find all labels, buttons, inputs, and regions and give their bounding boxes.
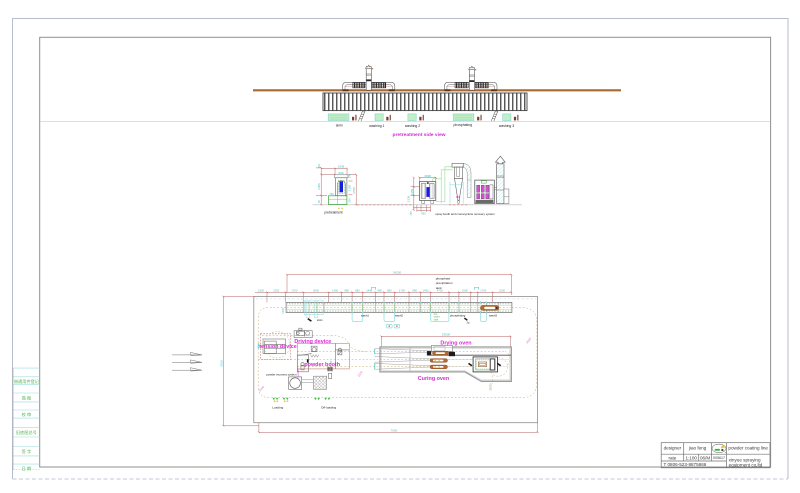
svg-text:850: 850 [421, 212, 426, 216]
svg-text:6150: 6150 [219, 360, 223, 367]
svg-text:Drying oven: Drying oven [440, 341, 471, 347]
svg-text:1700: 1700 [291, 289, 297, 293]
svg-text:1350: 1350 [410, 188, 414, 195]
svg-text:spray booth and monocyclone re: spray booth and monocyclone recovery sys… [435, 212, 495, 216]
svg-text:wash2: wash2 [395, 314, 404, 318]
svg-text:1450: 1450 [423, 289, 429, 293]
svg-text:tension device: tension device [259, 344, 296, 350]
svg-text:washing 2: washing 2 [405, 124, 420, 128]
svg-text:005617: 005617 [713, 456, 725, 460]
svg-text:Off-loading: Off-loading [321, 405, 336, 409]
svg-text:phosphate: phosphate [436, 276, 451, 280]
svg-text:T 0806-523-8875866: T 0806-523-8875866 [664, 462, 707, 467]
svg-text:24250: 24250 [393, 271, 402, 275]
svg-text:tank: tank [434, 318, 439, 321]
svg-text:Driving device: Driving device [294, 339, 331, 345]
svg-text:xinyue spraying: xinyue spraying [729, 457, 761, 462]
svg-text:1:100: 1:100 [685, 455, 697, 460]
svg-text:3750: 3750 [352, 187, 356, 194]
svg-text:rate: rate [668, 455, 676, 460]
svg-text:1500: 1500 [462, 289, 468, 293]
svg-text:phosphating: phosphating [454, 123, 473, 127]
svg-text:1938: 1938 [338, 165, 345, 169]
svg-text:7000: 7000 [391, 428, 398, 432]
svg-text:描 图: 描 图 [22, 395, 32, 402]
svg-text:1500: 1500 [258, 289, 264, 293]
svg-text:600: 600 [456, 195, 461, 199]
svg-text:880: 880 [413, 289, 418, 293]
svg-text:jiao feng: jiao feng [688, 446, 707, 451]
svg-text:校 审: 校 审 [22, 411, 32, 418]
svg-text:Loading: Loading [272, 405, 283, 409]
svg-text:880: 880 [355, 289, 360, 293]
svg-text:880: 880 [387, 289, 392, 293]
svg-text:200: 200 [348, 173, 351, 178]
svg-text:2300: 2300 [317, 183, 321, 190]
svg-text:washing 1: washing 1 [369, 124, 384, 128]
svg-text:tank: tank [436, 286, 442, 290]
svg-text:998: 998 [338, 171, 343, 175]
svg-text:450: 450 [410, 211, 413, 216]
svg-text:wash3: wash3 [489, 313, 498, 317]
svg-text:powder booth: powder booth [304, 362, 340, 368]
svg-text:1700: 1700 [480, 289, 486, 293]
svg-text:35/33: 35/33 [489, 383, 493, 390]
svg-text:washing 3: washing 3 [499, 124, 514, 128]
svg-text:skim: skim [317, 318, 323, 322]
svg-text:1450: 1450 [332, 289, 338, 293]
svg-text:designer: designer [664, 446, 682, 451]
svg-text:3000: 3000 [313, 289, 319, 293]
svg-text:3998: 3998 [424, 174, 431, 178]
svg-text:06/M: 06/M [700, 455, 710, 460]
svg-text:wash1: wash1 [361, 314, 370, 318]
svg-text:23500: 23500 [442, 332, 451, 336]
svg-text:pretreatment: pretreatment [324, 211, 342, 215]
svg-text:precipitation: precipitation [436, 281, 453, 285]
svg-text:powder coating line: powder coating line [728, 445, 768, 450]
svg-text:1350: 1350 [347, 184, 351, 191]
svg-text:750: 750 [329, 192, 334, 196]
svg-text:2250: 2250 [273, 289, 279, 293]
svg-text:880: 880 [345, 289, 350, 293]
svg-text:旧底图总号: 旧底图总号 [16, 429, 37, 436]
svg-text:skim: skim [336, 123, 343, 127]
svg-text:借通用件登记: 借通用件登记 [14, 378, 40, 385]
svg-text:300: 300 [317, 163, 321, 168]
svg-text:phosphating: phosphating [450, 313, 466, 317]
svg-text:1500: 1500 [281, 307, 285, 313]
svg-text:2200: 2200 [499, 289, 505, 293]
svg-text:2338: 2338 [406, 195, 410, 202]
svg-text:1445: 1445 [366, 289, 372, 293]
svg-text:880: 880 [378, 289, 383, 293]
svg-text:powder recovery system: powder recovery system [266, 372, 297, 376]
svg-text:equipment co,ltd: equipment co,ltd [729, 463, 763, 468]
svg-text:pretreatment side view: pretreatment side view [392, 132, 445, 138]
svg-text:Curing oven: Curing oven [418, 376, 449, 382]
svg-text:签 字: 签 字 [22, 448, 32, 454]
svg-text:1700: 1700 [399, 289, 405, 293]
svg-text:200: 200 [347, 198, 351, 203]
